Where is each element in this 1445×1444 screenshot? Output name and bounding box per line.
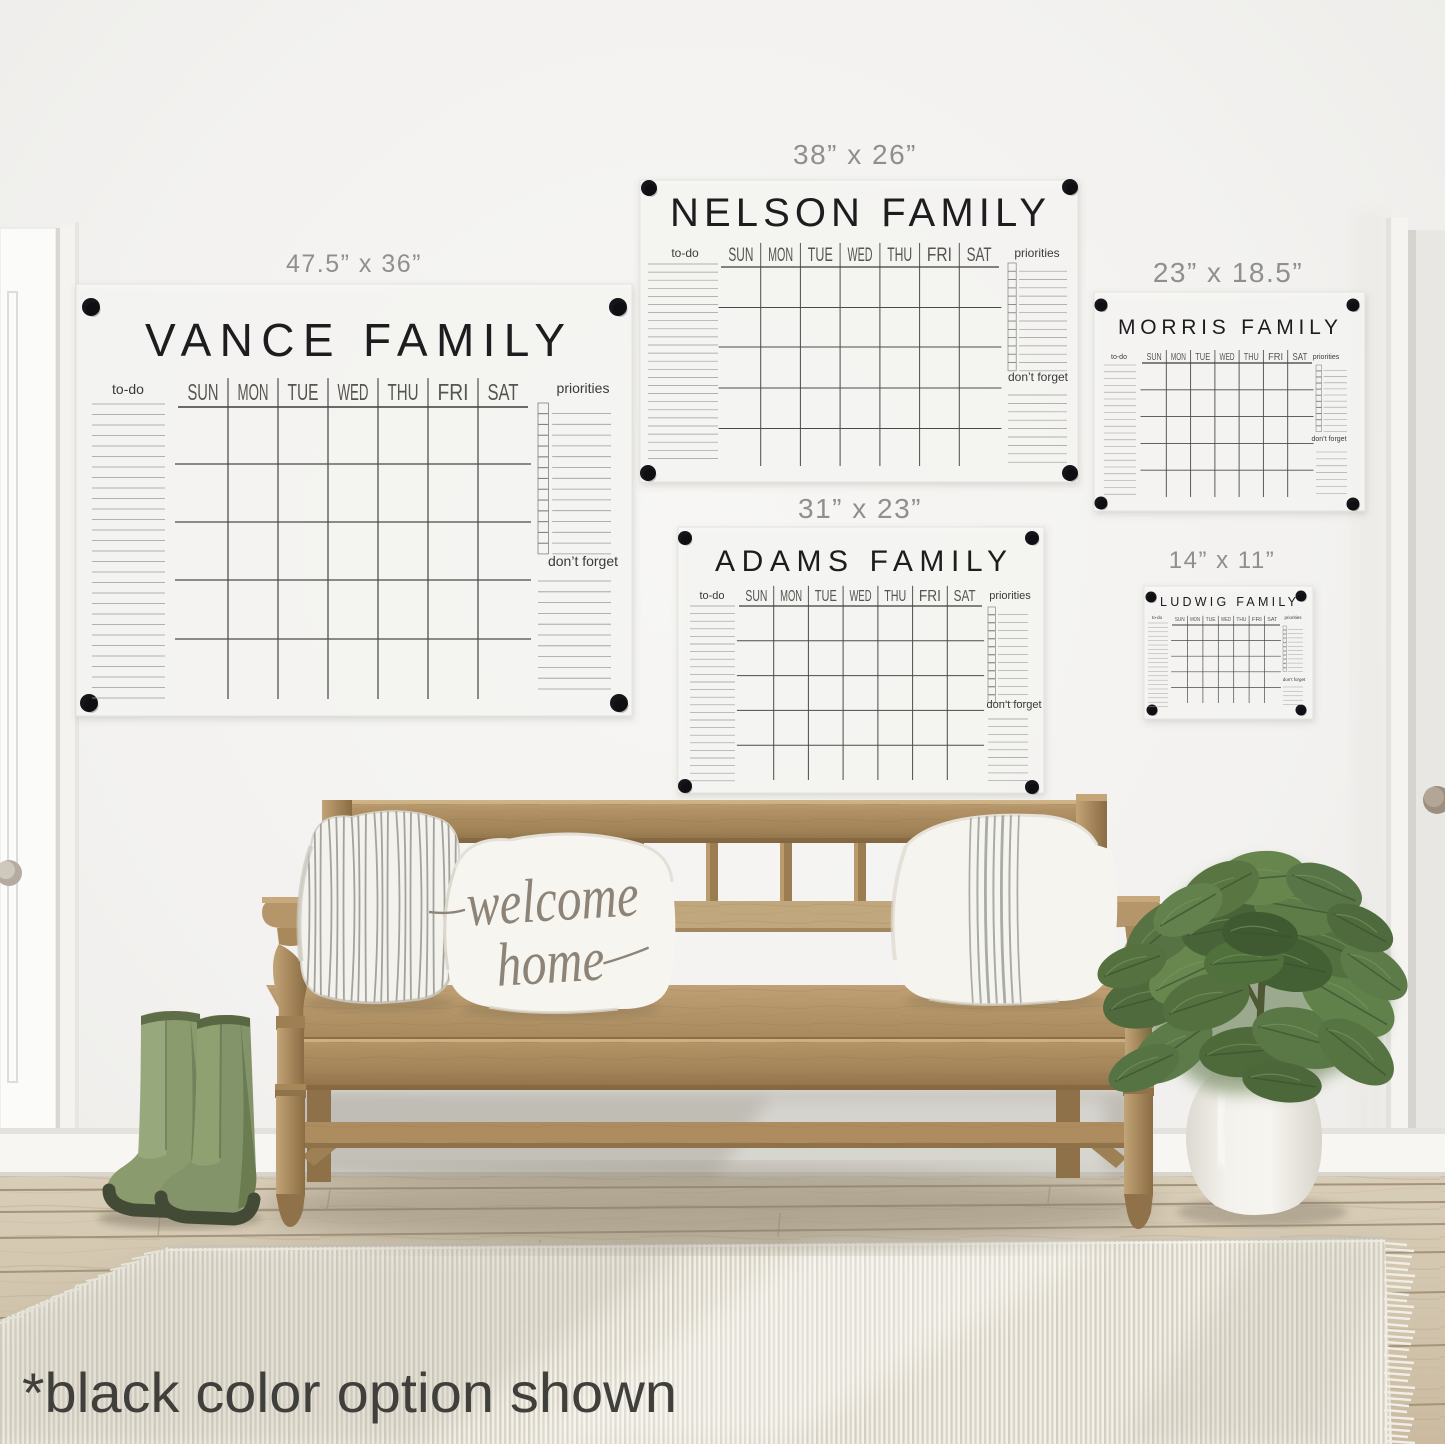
svg-text:MON: MON [238,379,269,405]
svg-text:SUN: SUN [1175,617,1185,623]
svg-text:to-do: to-do [671,246,699,260]
svg-text:priorities: priorities [1313,354,1340,361]
svg-text:WED: WED [848,245,873,266]
svg-text:priorities: priorities [989,590,1031,602]
svg-text:THU: THU [1236,617,1246,623]
svg-text:SAT: SAT [967,245,992,266]
svg-text:14” x 11”: 14” x 11” [1169,547,1275,574]
svg-text:WED: WED [338,379,369,405]
svg-text:MON: MON [768,245,793,266]
svg-text:to-do: to-do [699,590,724,602]
svg-text:WED: WED [1220,351,1235,363]
svg-text:WED: WED [1221,617,1231,623]
svg-text:don’t forget: don’t forget [986,699,1041,711]
svg-text:NELSON FAMILY: NELSON FAMILY [670,191,1046,235]
svg-text:WED: WED [850,588,872,605]
svg-text:priorities: priorities [1014,246,1059,260]
svg-text:THU: THU [388,379,419,405]
svg-text:TUE: TUE [1195,351,1210,363]
svg-text:FRI: FRI [919,588,941,605]
svg-text:SUN: SUN [745,588,767,605]
svg-text:47.5” x 36”: 47.5” x 36” [286,250,422,278]
svg-text:don’t forget: don’t forget [1311,436,1346,443]
svg-text:priorities: priorities [1284,615,1302,620]
svg-text:don’t forget: don’t forget [1008,370,1069,384]
svg-text:SAT: SAT [1292,351,1307,363]
svg-text:FRI: FRI [927,245,952,266]
svg-text:to-do: to-do [112,381,144,397]
svg-text:home: home [494,925,606,999]
svg-text:23” x 18.5”: 23” x 18.5” [1153,257,1303,288]
svg-text:*black color option shown: *black color option shown [22,1361,677,1424]
svg-text:FRI: FRI [1268,351,1283,363]
svg-text:TUE: TUE [808,245,833,266]
svg-text:SAT: SAT [954,588,976,605]
svg-text:don’t forget: don’t forget [548,553,618,569]
svg-text:MON: MON [1190,617,1200,623]
svg-text:31” x 23”: 31” x 23” [798,493,922,524]
svg-text:SAT: SAT [488,379,519,405]
svg-text:SUN: SUN [728,245,753,266]
svg-text:THU: THU [884,588,906,605]
svg-text:TUE: TUE [815,588,837,605]
svg-text:don’t forget: don’t forget [1283,677,1306,682]
svg-text:SUN: SUN [188,379,219,405]
svg-text:TUE: TUE [288,379,319,405]
svg-text:TUE: TUE [1206,617,1216,623]
svg-text:THU: THU [887,245,912,266]
svg-text:priorities: priorities [557,380,610,396]
svg-text:to-do: to-do [1111,354,1127,361]
svg-text:FRI: FRI [1252,617,1263,623]
svg-text:MON: MON [780,588,802,605]
svg-text:38” x 26”: 38” x 26” [793,139,917,170]
svg-text:to-do: to-do [1152,615,1163,620]
svg-text:SUN: SUN [1147,351,1162,363]
svg-text:FRI: FRI [438,379,469,405]
svg-text:MON: MON [1171,351,1186,363]
svg-text:SAT: SAT [1267,617,1278,623]
svg-text:THU: THU [1244,351,1259,363]
